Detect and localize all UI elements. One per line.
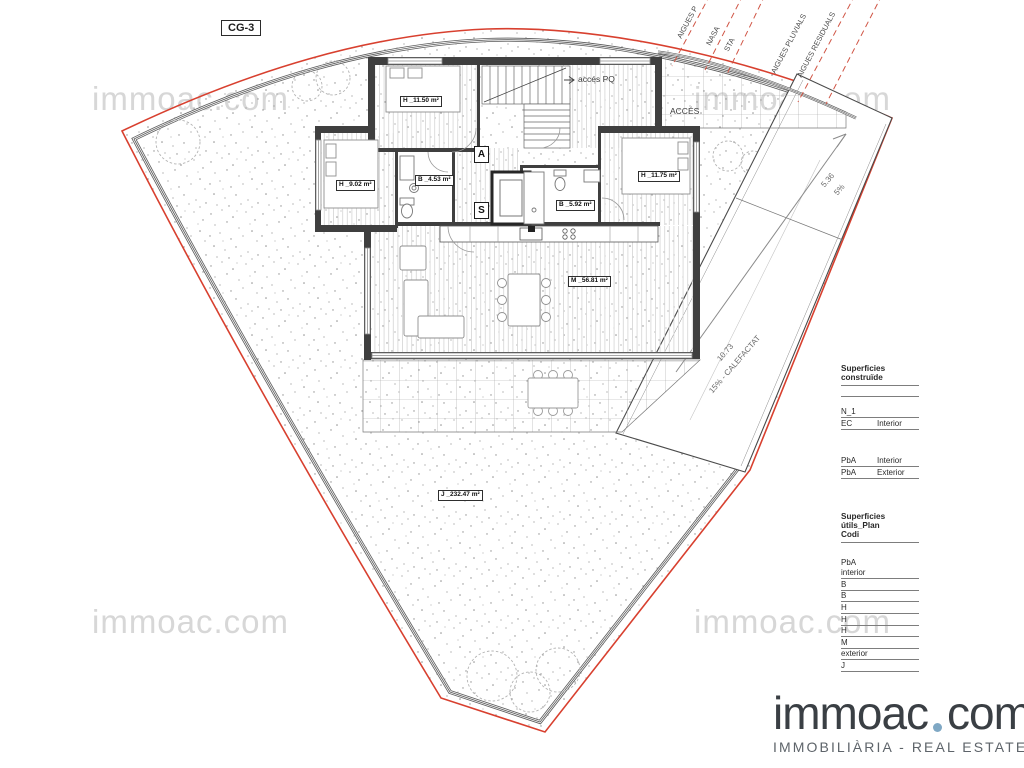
built-table-spacer [841,386,919,397]
logo-dot-icon [933,723,942,732]
letter-box-a: A [474,146,489,163]
useful-table-title: Superficies útils_Plan [841,512,919,530]
table-row: PbA [841,556,919,568]
table-row: M [841,637,919,649]
logo-brand-left: immoac [773,690,928,736]
room-label-h-902: H _9.02 m² [336,180,375,191]
building [315,57,700,360]
table-row: PbA Interior [841,455,919,467]
immoac-logo: immoac com IMMOBILIÀRIA - REAL ESTATE [773,690,1024,755]
cell: Interior [877,419,902,428]
acces-pq-label: accés PQ [578,74,615,84]
cell: PbA [841,468,877,477]
table-row: N_1 [841,406,919,418]
cell: EC [841,419,877,428]
outdoor-dining-set [528,371,578,416]
room-label-b-453: B _4.53 m² [415,175,454,186]
table-row: PbA Exterior [841,467,919,479]
table-row: exterior [841,649,919,661]
table-row: H [841,626,919,638]
cell: Exterior [877,468,905,477]
room-label-m-5681: M _56.81 m² [568,276,611,287]
table-row: interior [841,568,919,580]
cell: N_1 [841,407,877,416]
table-row: J [841,660,919,672]
kitchen-counter [440,226,658,242]
room-label-b-592: B _5.92 m² [556,200,595,211]
table-row: B [841,591,919,603]
acces-label: ACCÉS [670,106,699,116]
cell: PbA [841,456,877,465]
room-label-h-1150: H _11.50 m² [400,96,442,107]
table-row: EC Interior [841,418,919,430]
letter-box-s: S [474,202,489,219]
table-row: B [841,579,919,591]
useful-table-code-header: Codi [841,530,919,543]
built-surfaces-table: Superficies construïde N_1 EC Interior P… [841,364,919,479]
logo-brand-right: com [947,690,1024,736]
useful-surfaces-table: Superficies útils_Plan Codi PbA interior… [841,512,919,672]
sheet-code-box: CG-3 [221,20,261,36]
drawing-sheet: immoac.com immoac.com immoac.com immoac.… [0,0,1024,768]
room-label-h-1175: H _11.75 m² [638,171,680,182]
logo-tagline: IMMOBILIÀRIA - REAL ESTATE [773,739,1024,755]
built-table-title: Superficies construïde [841,364,919,386]
table-row: H [841,614,919,626]
cell: Interior [877,456,902,465]
table-row: H [841,602,919,614]
garden-label-j-23247: J _232.47 m² [438,490,483,501]
logo-brand: immoac com [773,690,1024,736]
